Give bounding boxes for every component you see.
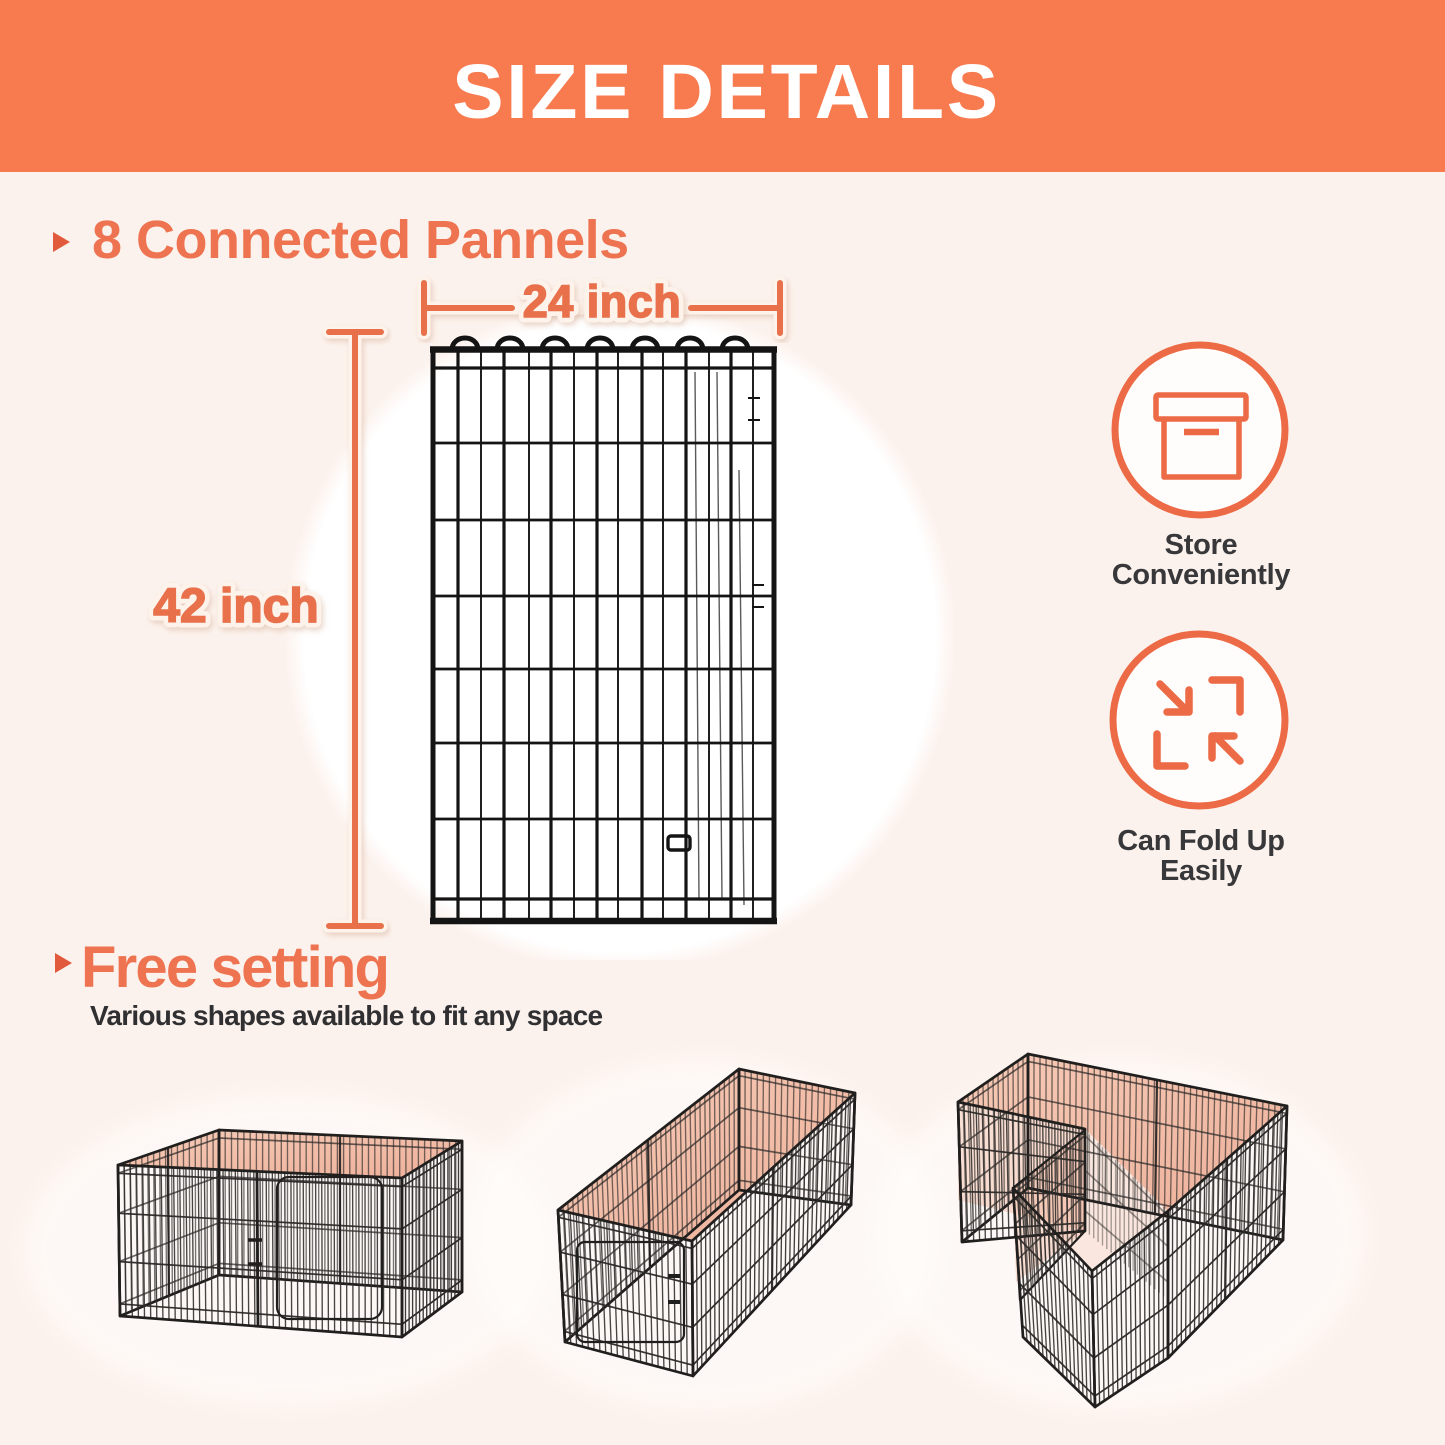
svg-text:24 inch: 24 inch [523, 276, 682, 327]
svg-text:42 inch: 42 inch [153, 580, 318, 633]
